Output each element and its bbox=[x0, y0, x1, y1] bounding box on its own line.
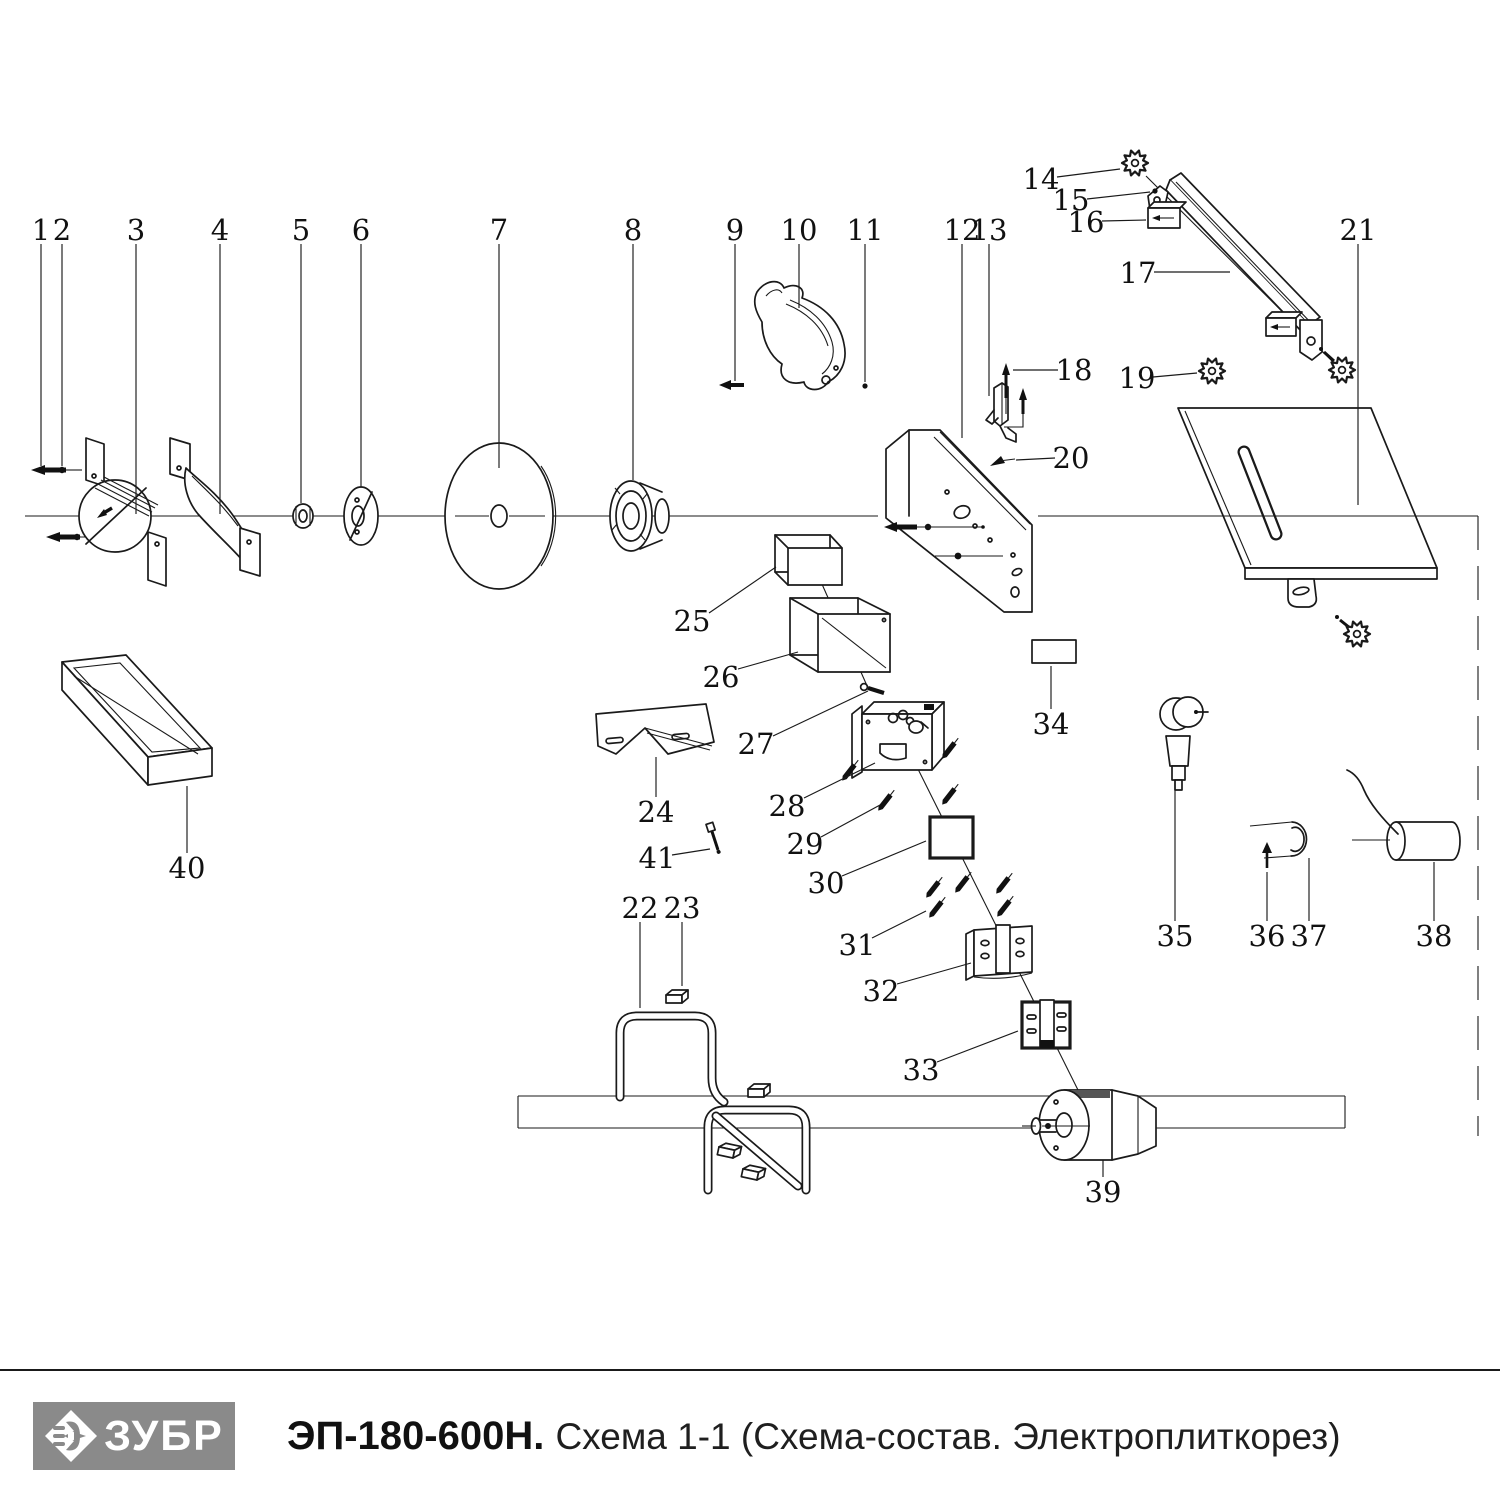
schema-title: ЭП-180-600Н. Схема 1-1 (Схема-состав. Эл… bbox=[287, 1414, 1341, 1459]
part-label-10: 10 bbox=[781, 213, 818, 247]
part-leader-31 bbox=[872, 911, 926, 938]
part-leader-16 bbox=[1102, 220, 1146, 221]
part-21-table bbox=[1178, 408, 1437, 607]
rail-end-knob bbox=[1319, 347, 1355, 382]
brand-logo: ЗУБР bbox=[33, 1402, 235, 1470]
part-27-screw bbox=[861, 684, 884, 693]
part-label-1: 1 bbox=[32, 213, 50, 247]
part-label-39: 39 bbox=[1085, 1175, 1122, 1209]
exploded-parts-diagram: 1234567891011121314151617181920212223242… bbox=[0, 0, 1500, 1340]
part-leader-20 bbox=[1016, 458, 1055, 460]
part-label-38: 38 bbox=[1416, 919, 1453, 953]
part-4-guard-half bbox=[170, 438, 260, 576]
part-label-24: 24 bbox=[638, 795, 675, 829]
table-knob bbox=[1335, 615, 1370, 646]
part-38-capacitor bbox=[1347, 770, 1460, 860]
brand-name: ЗУБР bbox=[104, 1415, 224, 1458]
part-label-30: 30 bbox=[808, 866, 845, 900]
part-22-stand-tubes bbox=[620, 1016, 806, 1190]
part-35-plug bbox=[1160, 697, 1208, 790]
part-36-screw bbox=[1262, 842, 1272, 868]
part-leader-14 bbox=[1057, 169, 1120, 177]
part-label-19: 19 bbox=[1119, 361, 1156, 395]
part-19-star-knob bbox=[1199, 359, 1225, 384]
model-number: ЭП-180-600Н. bbox=[287, 1414, 544, 1458]
part-leader-28 bbox=[804, 763, 875, 798]
part-label-23: 23 bbox=[664, 891, 701, 925]
page: 1234567891011121314151617181920212223242… bbox=[0, 0, 1500, 1500]
part-label-26: 26 bbox=[703, 660, 740, 694]
part-41-bolt bbox=[706, 822, 723, 855]
part-leader-25 bbox=[709, 567, 776, 613]
part-label-27: 27 bbox=[738, 727, 775, 761]
part-leader-33 bbox=[937, 1031, 1018, 1062]
part-16b-clamp bbox=[1266, 312, 1302, 336]
part-label-31: 31 bbox=[839, 928, 876, 962]
footer: ЗУБР ЭП-180-600Н. Схема 1-1 (Схема-соста… bbox=[33, 1402, 1341, 1470]
part-label-41: 41 bbox=[639, 841, 676, 875]
part-leader-29 bbox=[821, 805, 880, 837]
part-39-motor bbox=[1022, 1090, 1156, 1160]
schema-subtitle: Схема 1-1 (Схема-состав. Электроплиткоре… bbox=[555, 1416, 1340, 1457]
part-14-star-knob bbox=[1122, 151, 1148, 176]
part-label-33: 33 bbox=[903, 1053, 940, 1087]
part-label-20: 20 bbox=[1053, 441, 1090, 475]
part-13-clip bbox=[986, 383, 1016, 442]
part-label-25: 25 bbox=[674, 604, 711, 638]
part-25-cover bbox=[775, 535, 842, 585]
part-12-motor-bracket bbox=[884, 430, 1032, 612]
part-label-11: 11 bbox=[847, 213, 884, 247]
part-leader-15 bbox=[1087, 192, 1150, 199]
part-7-cutting-disc bbox=[445, 443, 556, 589]
part-leader-26 bbox=[738, 652, 798, 669]
part-label-37: 37 bbox=[1291, 919, 1328, 953]
part-9-screw bbox=[719, 380, 744, 390]
part-40-tray bbox=[62, 655, 212, 785]
part-label-13: 13 bbox=[971, 213, 1008, 247]
part-30-plate bbox=[930, 817, 973, 858]
part-leader-41 bbox=[672, 849, 710, 855]
part-label-36: 36 bbox=[1249, 919, 1286, 953]
part-label-2: 2 bbox=[53, 213, 71, 247]
part-label-16: 16 bbox=[1068, 205, 1105, 239]
part-11-pin bbox=[862, 383, 867, 388]
part-8-flange-nut bbox=[610, 481, 669, 551]
part-label-5: 5 bbox=[292, 213, 310, 247]
part-37-cable-clamp bbox=[1250, 822, 1307, 858]
part-20-screw bbox=[990, 456, 1015, 466]
part-5-nut bbox=[293, 504, 313, 528]
part-34-plate bbox=[1032, 640, 1076, 663]
part-leader-30 bbox=[842, 841, 926, 876]
part-label-32: 32 bbox=[863, 974, 900, 1008]
part-label-28: 28 bbox=[769, 789, 806, 823]
part-label-7: 7 bbox=[490, 213, 508, 247]
part-label-21: 21 bbox=[1340, 213, 1377, 247]
part-6-flange bbox=[344, 487, 378, 545]
part-label-35: 35 bbox=[1157, 919, 1194, 953]
part-label-8: 8 bbox=[624, 213, 642, 247]
part-3-blade-guard bbox=[79, 438, 166, 586]
part-28-switch bbox=[852, 702, 944, 778]
part-24-plate bbox=[596, 704, 714, 754]
part-label-29: 29 bbox=[787, 827, 824, 861]
part-32-terminal-block bbox=[966, 925, 1032, 980]
part-10-handle bbox=[755, 282, 845, 390]
part-leader-32 bbox=[897, 963, 971, 984]
part-label-3: 3 bbox=[127, 213, 145, 247]
part-15-pin bbox=[1152, 188, 1157, 193]
part-label-34: 34 bbox=[1033, 707, 1070, 741]
axis-lines bbox=[25, 176, 1345, 1128]
part-leader-19 bbox=[1153, 373, 1197, 377]
zubr-diamond-icon bbox=[44, 1409, 98, 1463]
part-label-17: 17 bbox=[1120, 256, 1157, 290]
part-label-18: 18 bbox=[1056, 353, 1093, 387]
part-label-4: 4 bbox=[211, 213, 229, 247]
part-26-housing bbox=[790, 598, 890, 672]
part-label-6: 6 bbox=[352, 213, 370, 247]
part-label-40: 40 bbox=[169, 851, 206, 885]
part-label-22: 22 bbox=[622, 891, 659, 925]
part-16-clamp bbox=[1148, 202, 1186, 228]
footer-divider bbox=[0, 1369, 1500, 1371]
part-33-terminal-block bbox=[1022, 1000, 1070, 1048]
part-label-9: 9 bbox=[726, 213, 744, 247]
